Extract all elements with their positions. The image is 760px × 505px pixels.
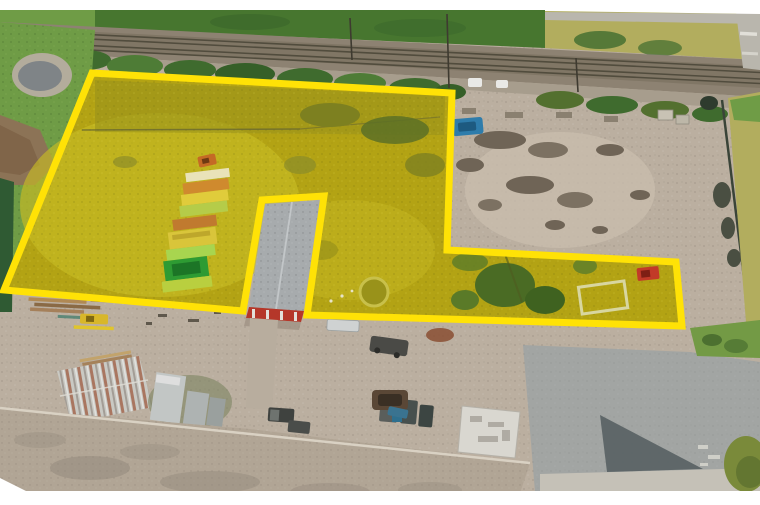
pond xyxy=(18,61,62,91)
red-mower xyxy=(636,266,659,281)
dark-tank xyxy=(700,96,718,110)
photo-frame xyxy=(0,0,760,505)
trailer-2 xyxy=(183,391,210,428)
blue-machine xyxy=(451,117,483,137)
hay-ring xyxy=(360,278,388,306)
white-pad-building xyxy=(458,406,520,458)
rust-dirt-patch xyxy=(426,328,454,342)
interior-fence-line xyxy=(82,129,300,130)
aerial-photo xyxy=(0,0,760,505)
truck-2 xyxy=(287,420,310,434)
silver-trailer xyxy=(327,319,360,332)
